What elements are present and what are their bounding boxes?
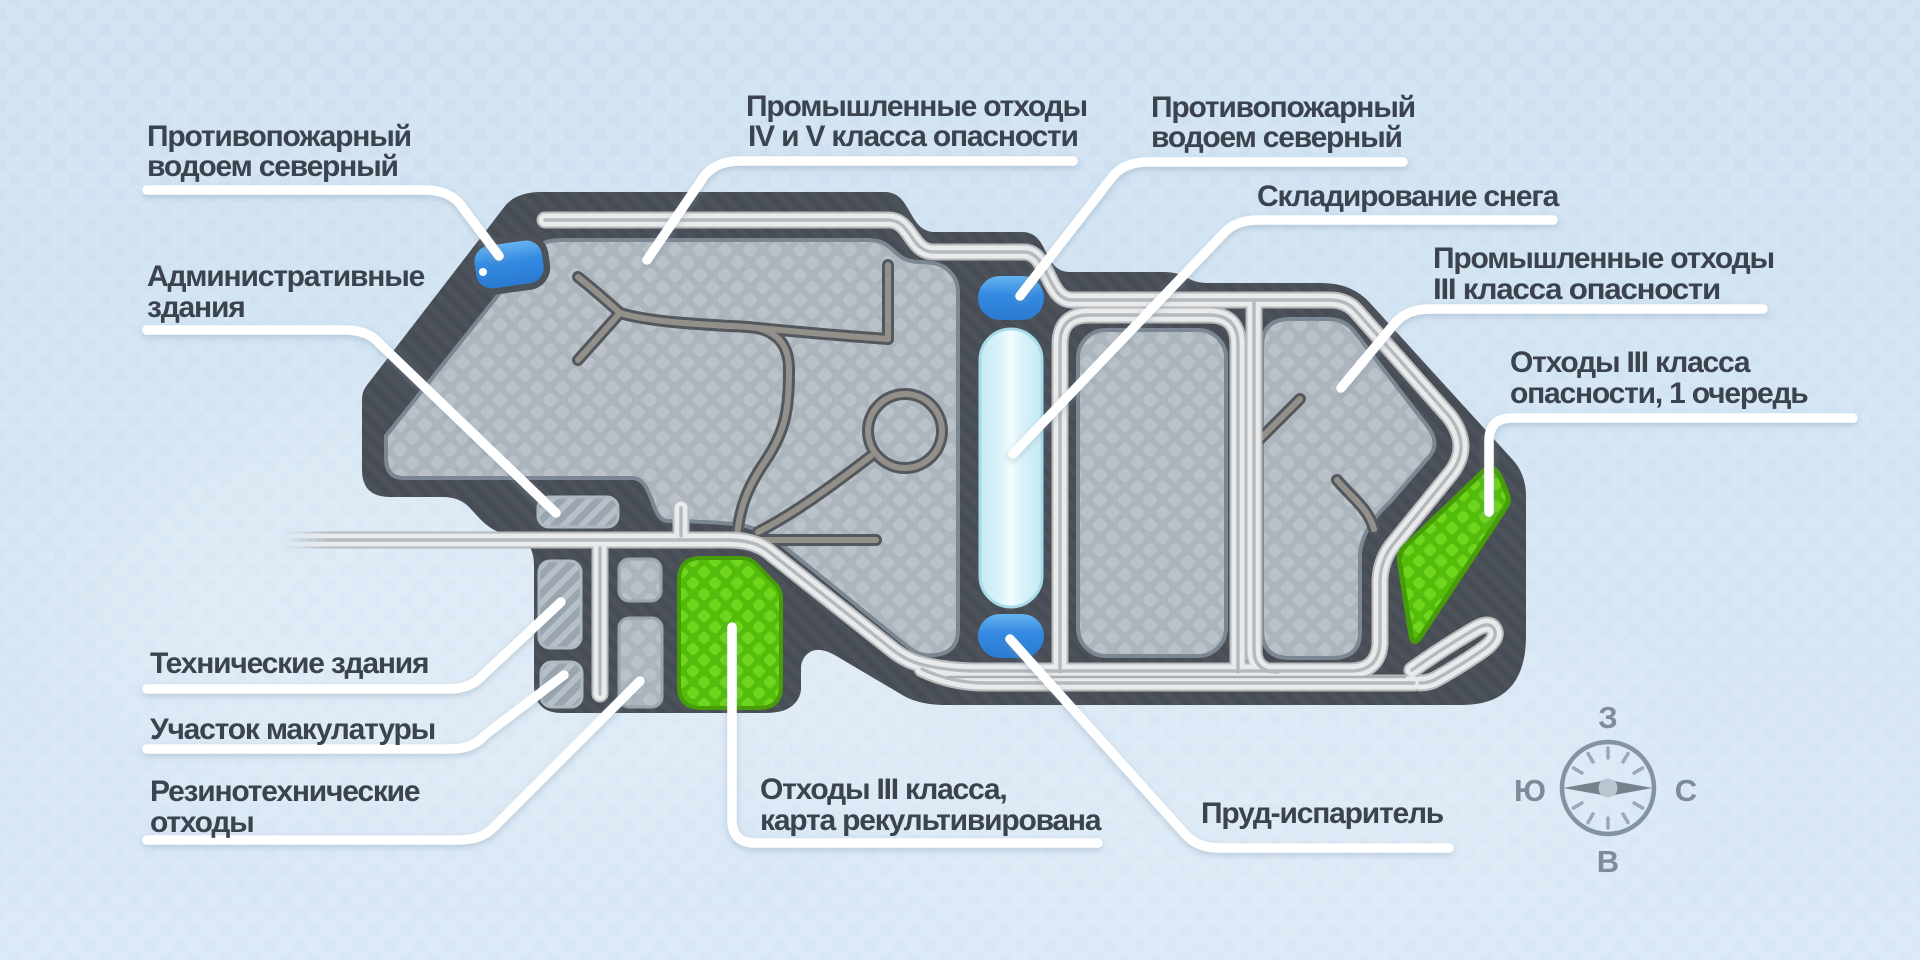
svg-text:водоем северный: водоем северный <box>147 150 398 183</box>
svg-text:Участок макулатуры: Участок макулатуры <box>150 713 435 746</box>
svg-text:III класса опасности: III класса опасности <box>1433 273 1720 306</box>
svg-text:отходы: отходы <box>150 806 254 839</box>
svg-text:Пруд-испаритель: Пруд-испаритель <box>1201 797 1444 830</box>
svg-text:С: С <box>1675 773 1697 808</box>
svg-text:Отходы III класса,: Отходы III класса, <box>760 773 1007 806</box>
svg-text:Отходы III класса: Отходы III класса <box>1510 346 1751 379</box>
svg-text:Складирование снега: Складирование снега <box>1257 180 1560 213</box>
svg-text:водоем северный: водоем северный <box>1151 121 1402 154</box>
svg-text:Промышленные отходы: Промышленные отходы <box>746 90 1087 123</box>
svg-text:IV и V класса опасности: IV и V класса опасности <box>748 120 1078 153</box>
svg-text:З: З <box>1598 700 1617 735</box>
svg-text:Административные: Административные <box>147 260 425 293</box>
svg-text:здания: здания <box>147 291 245 324</box>
svg-text:карта рекультивирована: карта рекультивирована <box>760 804 1102 837</box>
svg-text:Противопожарный: Противопожарный <box>1151 91 1415 124</box>
svg-text:Противопожарный: Противопожарный <box>147 120 411 153</box>
svg-text:Ю: Ю <box>1514 773 1546 808</box>
svg-text:опасности, 1 очередь: опасности, 1 очередь <box>1510 377 1808 410</box>
svg-text:Промышленные отходы: Промышленные отходы <box>1433 242 1774 275</box>
svg-text:Технические здания: Технические здания <box>150 647 428 680</box>
svg-text:Резинотехнические: Резинотехнические <box>150 775 420 808</box>
svg-text:В: В <box>1597 844 1619 879</box>
